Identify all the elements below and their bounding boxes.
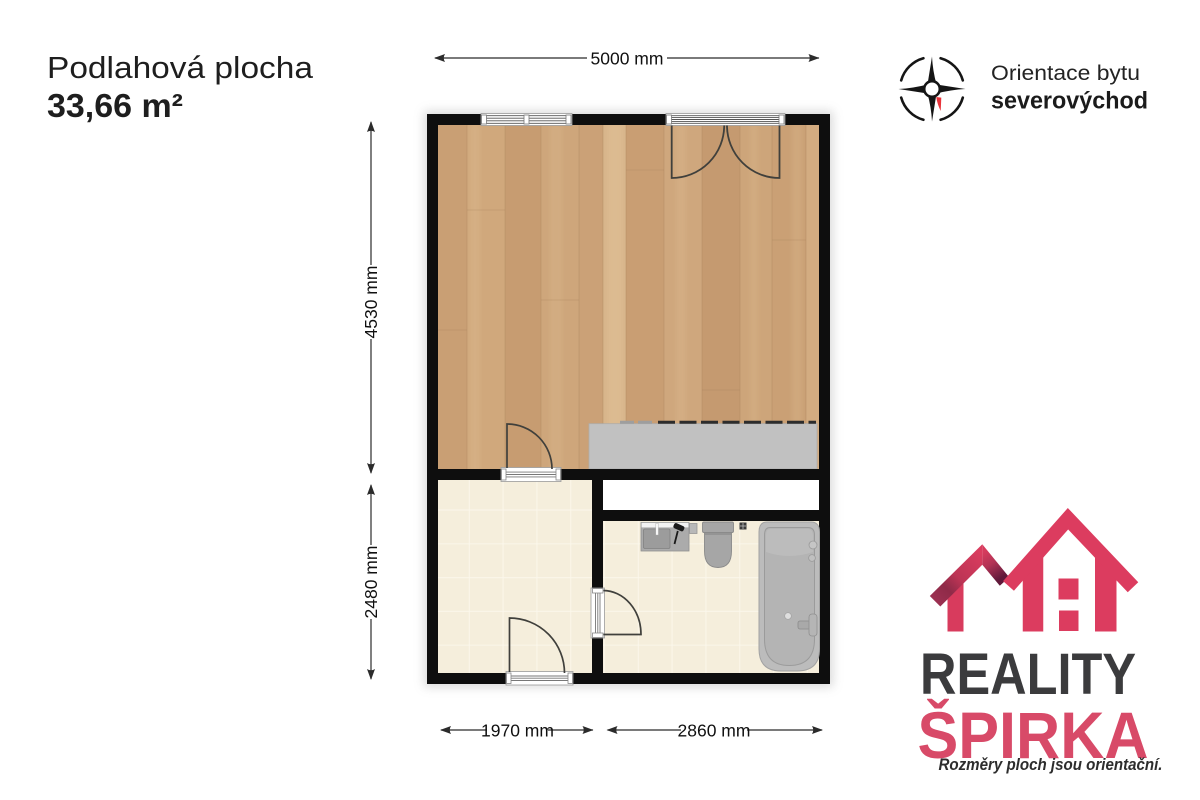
svg-text:Podlahová plocha: Podlahová plocha [47,50,314,85]
svg-text:4530 mm: 4530 mm [361,266,381,339]
svg-text:1970 mm: 1970 mm [481,721,554,741]
svg-text:Rozměry ploch jsou orientační.: Rozměry ploch jsou orientační. [939,756,1163,774]
svg-text:Orientace bytu: Orientace bytu [991,61,1140,85]
svg-text:2480 mm: 2480 mm [361,546,381,619]
svg-text:33,66 m²: 33,66 m² [47,87,183,124]
svg-text:2860 mm: 2860 mm [678,721,751,741]
svg-text:severovýchod: severovýchod [991,88,1148,115]
svg-text:5000 mm: 5000 mm [591,49,664,69]
